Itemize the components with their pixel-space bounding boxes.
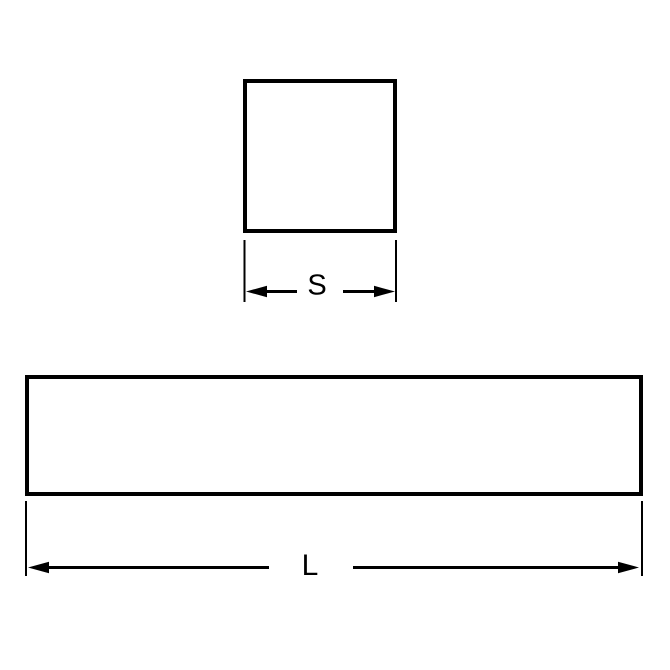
- l-arrowhead-right-icon: [618, 562, 639, 573]
- diagram-canvas: S L: [0, 0, 670, 670]
- dimension-label-square-side: S: [307, 272, 326, 301]
- square-end-view-outline: [245, 81, 395, 231]
- dimension-drawing: [0, 0, 670, 670]
- s-arrowhead-right-icon: [374, 286, 395, 297]
- l-arrowhead-left-icon: [28, 562, 49, 573]
- s-arrowhead-left-icon: [246, 286, 267, 297]
- dimension-label-bar-length: L: [302, 551, 319, 581]
- bar-side-view-outline: [27, 377, 641, 494]
